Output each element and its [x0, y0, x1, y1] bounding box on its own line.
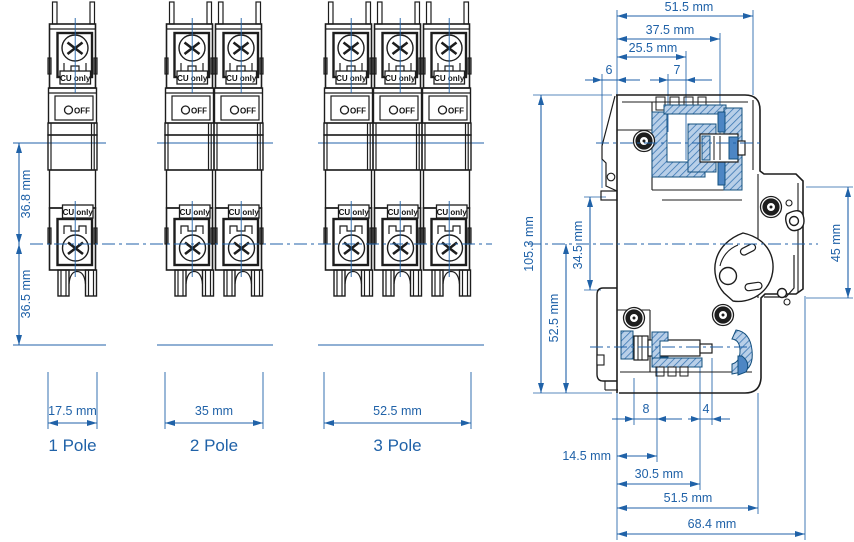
module-3pole-c — [422, 2, 471, 296]
breaker-dimension-drawing: CU only OFF CU only — [0, 0, 854, 542]
dim-opening-width: 7 — [674, 63, 681, 77]
dim-width-2pole: 35 mm — [195, 404, 233, 418]
toggle-handle — [715, 233, 773, 301]
housing-screw-top — [634, 131, 655, 152]
screw-head-side — [634, 336, 648, 360]
dim-front-upper-height: 36.8 mm — [19, 170, 33, 219]
side-view: 51.5 mm 37.5 mm 25.5 mm 6 7 105.3 mm 34.… — [522, 0, 853, 540]
width-extension-lines — [48, 372, 471, 429]
dim-overall-height: 105.3 mm — [522, 216, 536, 272]
dim-bottom-width: 51.5 mm — [664, 491, 713, 505]
din-tab-top — [601, 191, 617, 200]
din-clip — [597, 288, 617, 381]
dim-screw-offset: 8 — [643, 402, 650, 416]
toggle-mechanism — [715, 200, 804, 305]
dim-width-1pole: 17.5 mm — [48, 404, 97, 418]
view-label-2pole: 2 Pole — [190, 436, 238, 455]
dim-lower-height: 52.5 mm — [547, 294, 561, 343]
module-3pole-a — [324, 2, 373, 296]
housing-screw-mid — [761, 197, 782, 218]
view-label-3pole: 3 Pole — [373, 436, 421, 455]
dim-top-width: 51.5 mm — [665, 0, 714, 14]
housing-screw-bottom-mid — [713, 305, 734, 326]
rear-hole — [607, 173, 615, 181]
drawing-svg: CU only OFF CU only — [0, 0, 854, 542]
module-3pole-b — [373, 2, 422, 296]
dim-rear-offset: 6 — [606, 63, 613, 77]
view-label-1pole: 1 Pole — [48, 436, 96, 455]
dim-rail-span: 34.5 mm — [571, 221, 585, 270]
dim-clip-depth: 14.5 mm — [562, 449, 611, 463]
module-2pole-a — [165, 2, 214, 296]
toggle-hole — [720, 268, 737, 285]
module-2pole-b — [214, 2, 263, 296]
dim-front-lower-height: 36.5 mm — [19, 270, 33, 319]
dim-terminal-depth: 37.5 mm — [646, 23, 695, 37]
dim-overall-depth: 68.4 mm — [688, 517, 737, 531]
din-clip-notch — [597, 355, 604, 365]
front-views: 36.8 mm 36.5 mm 17.5 mm 35 mm 52.5 mm 1 … — [13, 2, 492, 455]
dim-screw-depth: 25.5 mm — [629, 41, 678, 55]
housing-screw-bottom-left — [624, 308, 645, 329]
dim-lower-depth: 30.5 mm — [635, 467, 684, 481]
dim-front-height: 45 mm — [829, 224, 843, 262]
dim-clearance: 4 — [703, 402, 710, 416]
dim-width-3pole: 52.5 mm — [373, 404, 422, 418]
module-1pole — [48, 2, 97, 296]
bottom-terminal-section — [621, 330, 752, 376]
